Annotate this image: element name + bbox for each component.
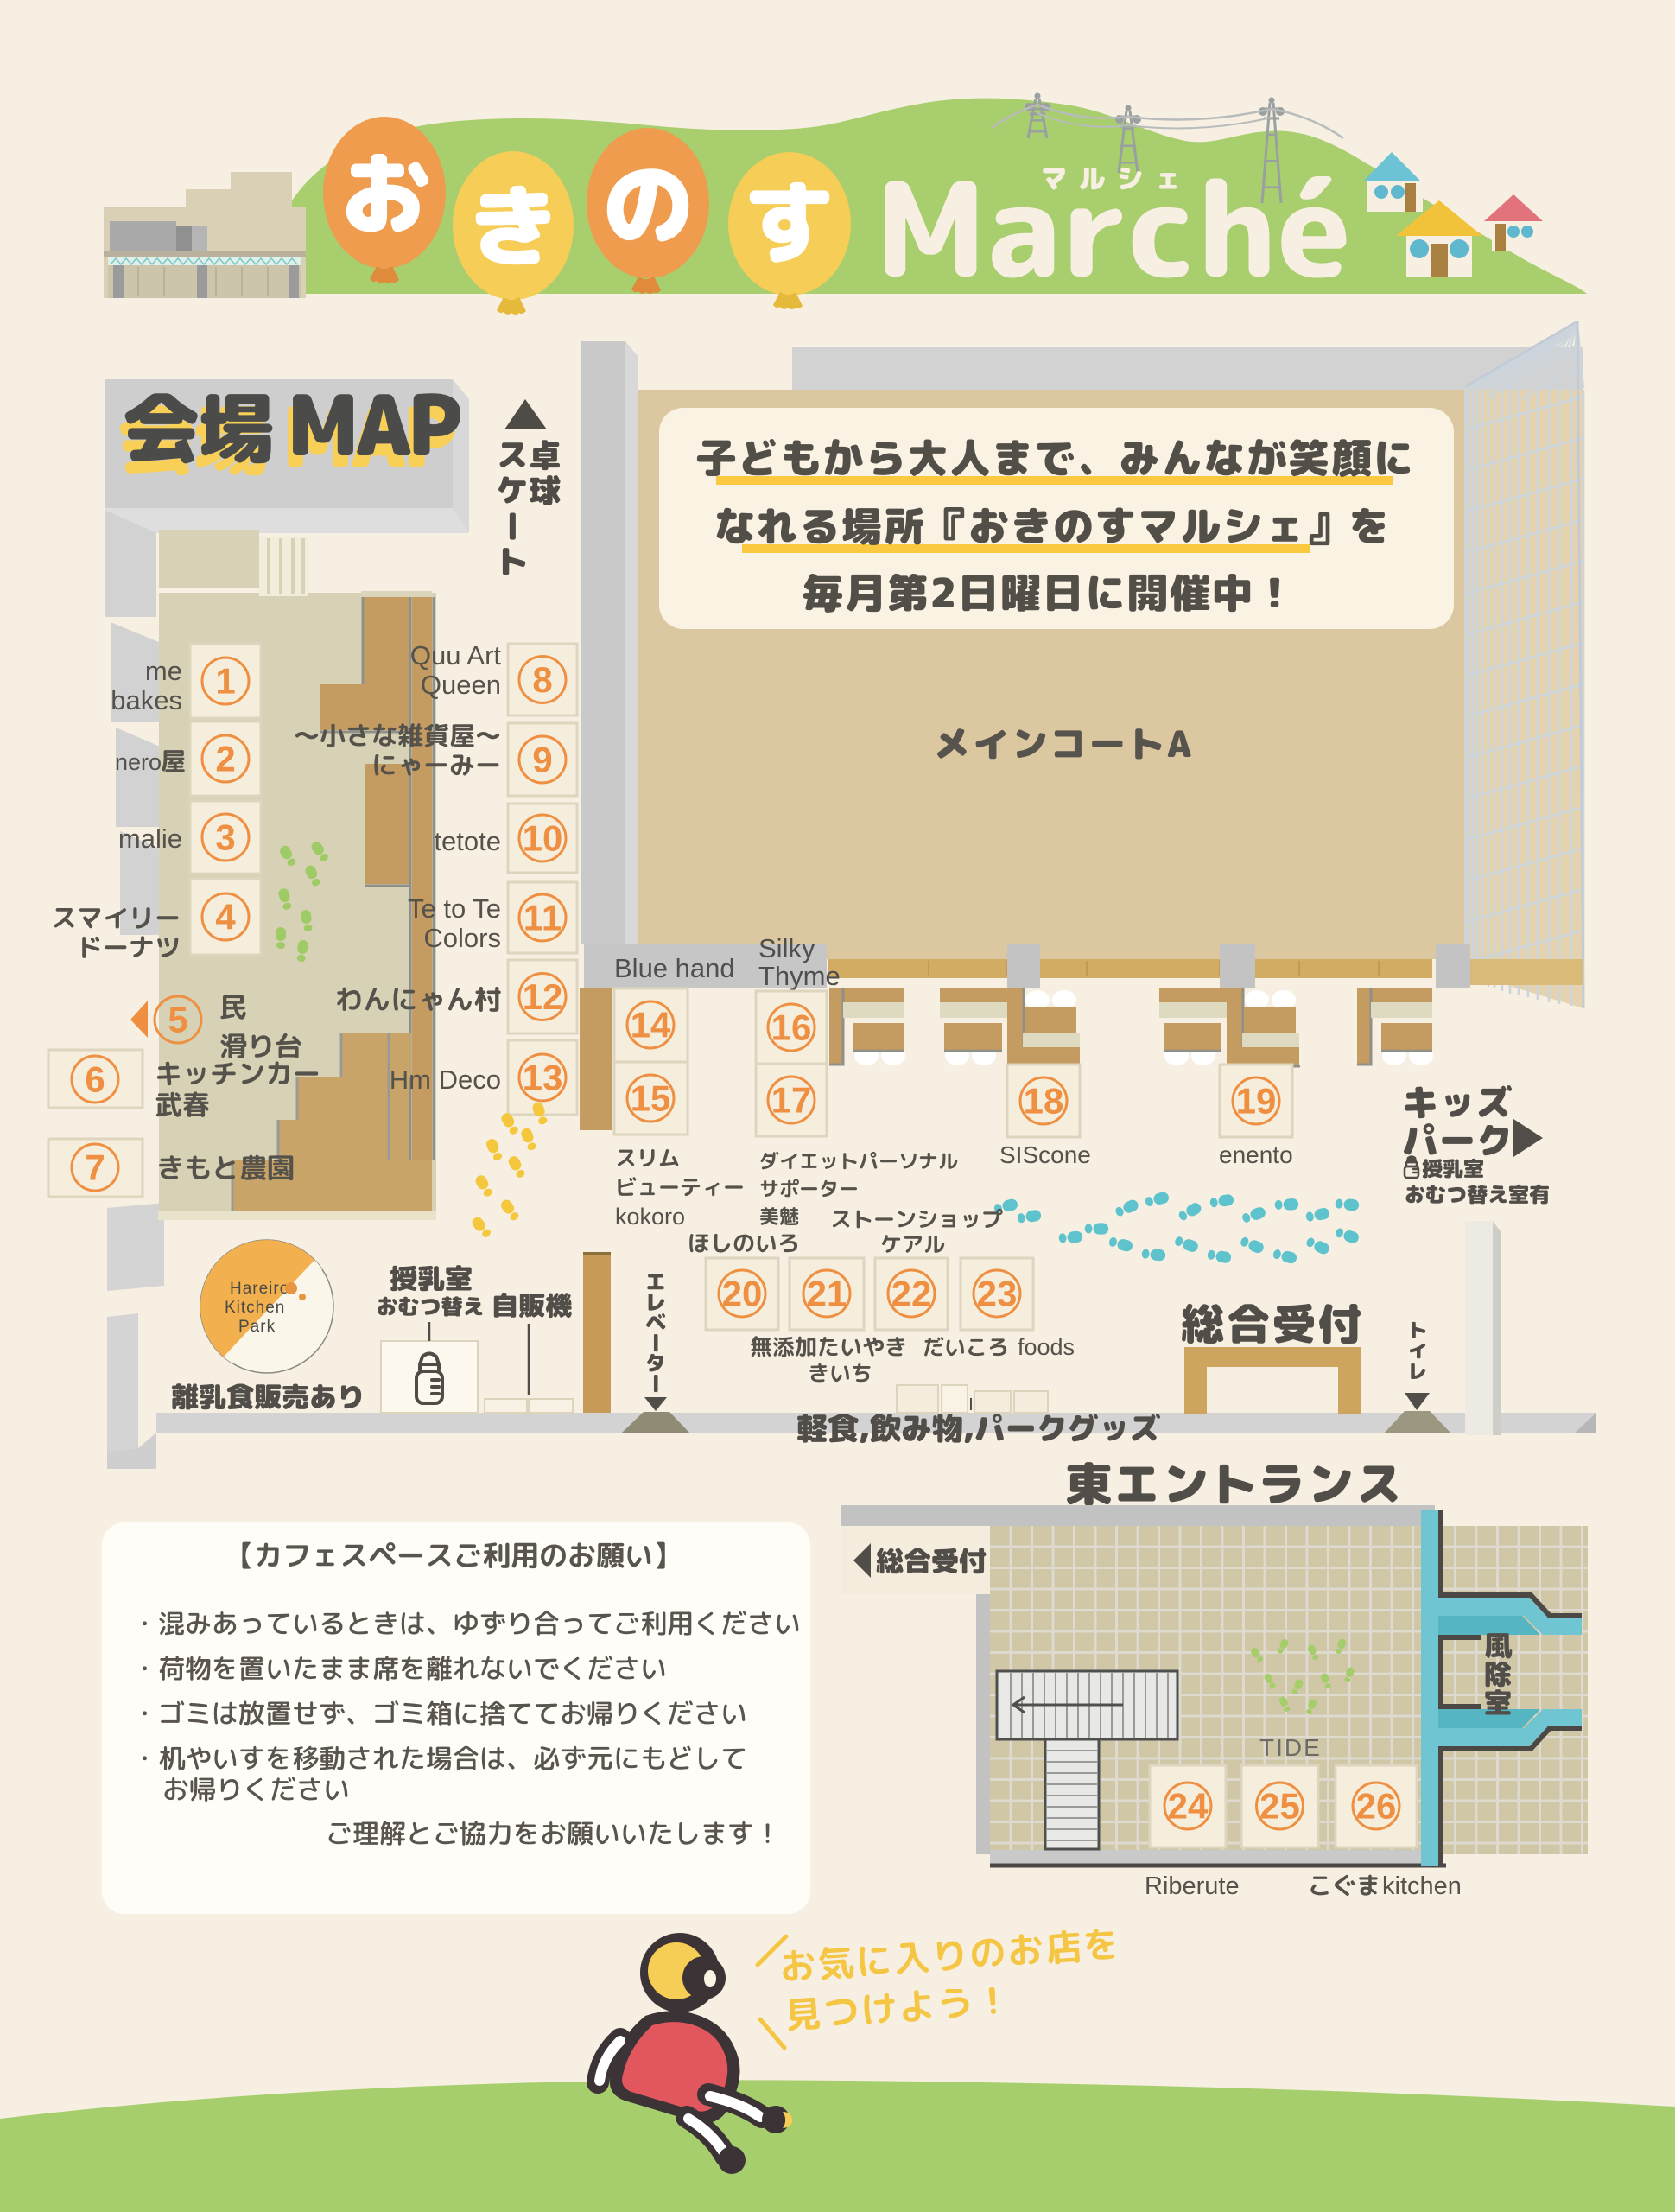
svg-text:7: 7 [85, 1147, 105, 1188]
svg-text:foods: foods [1018, 1334, 1075, 1360]
svg-text:6: 6 [85, 1059, 105, 1100]
svg-text:Blue hand: Blue hand [614, 953, 735, 983]
svg-text:Te to Te: Te to Te [408, 893, 501, 924]
svg-text:15: 15 [631, 1078, 671, 1119]
svg-text:enento: enento [1219, 1141, 1293, 1168]
svg-text:kokoro: kokoro [615, 1204, 685, 1230]
svg-text:Park: Park [238, 1318, 276, 1336]
svg-text:me: me [145, 656, 182, 686]
svg-text:4: 4 [215, 897, 236, 938]
svg-text:9: 9 [532, 740, 552, 780]
svg-text:12: 12 [523, 976, 563, 1017]
svg-text:Colors: Colors [423, 923, 501, 953]
svg-text:14: 14 [631, 1005, 671, 1046]
svg-text:19: 19 [1236, 1081, 1277, 1122]
svg-text:23: 23 [977, 1274, 1018, 1314]
svg-text:11: 11 [523, 898, 562, 938]
svg-text:18: 18 [1024, 1081, 1064, 1122]
svg-text:Thyme: Thyme [758, 961, 841, 991]
svg-text:Queen: Queen [421, 670, 501, 700]
svg-text:20: 20 [722, 1274, 763, 1314]
svg-text:21: 21 [807, 1274, 847, 1314]
svg-text:10: 10 [523, 818, 563, 859]
svg-text:5: 5 [168, 1000, 187, 1040]
svg-text:TIDE: TIDE [1259, 1734, 1322, 1761]
svg-text:16: 16 [771, 1007, 812, 1048]
svg-text:26: 26 [1356, 1786, 1397, 1827]
svg-text:Hareiro: Hareiro [230, 1280, 289, 1298]
svg-text:Hm Deco: Hm Deco [390, 1065, 501, 1095]
svg-text:2: 2 [215, 739, 235, 779]
svg-text:8: 8 [532, 659, 552, 700]
svg-text:nero: nero [115, 749, 162, 775]
svg-text:Silky: Silky [758, 933, 815, 963]
svg-text:3: 3 [215, 817, 235, 858]
svg-text:Riberute: Riberute [1145, 1872, 1240, 1900]
svg-text:SIScone: SIScone [999, 1141, 1091, 1168]
svg-text:kitchen: kitchen [1382, 1872, 1462, 1900]
svg-text:25: 25 [1259, 1786, 1300, 1827]
svg-text:24: 24 [1168, 1786, 1209, 1827]
svg-text:Kitchen: Kitchen [225, 1299, 285, 1317]
svg-text:1: 1 [215, 661, 235, 702]
svg-text:13: 13 [523, 1058, 563, 1098]
svg-text:malie: malie [118, 823, 182, 854]
svg-text:22: 22 [891, 1274, 932, 1314]
svg-text:bakes: bakes [111, 685, 182, 715]
svg-text:Quu Art: Quu Art [410, 640, 501, 671]
svg-text:17: 17 [771, 1080, 812, 1121]
svg-text:tetote: tetote [434, 826, 501, 856]
